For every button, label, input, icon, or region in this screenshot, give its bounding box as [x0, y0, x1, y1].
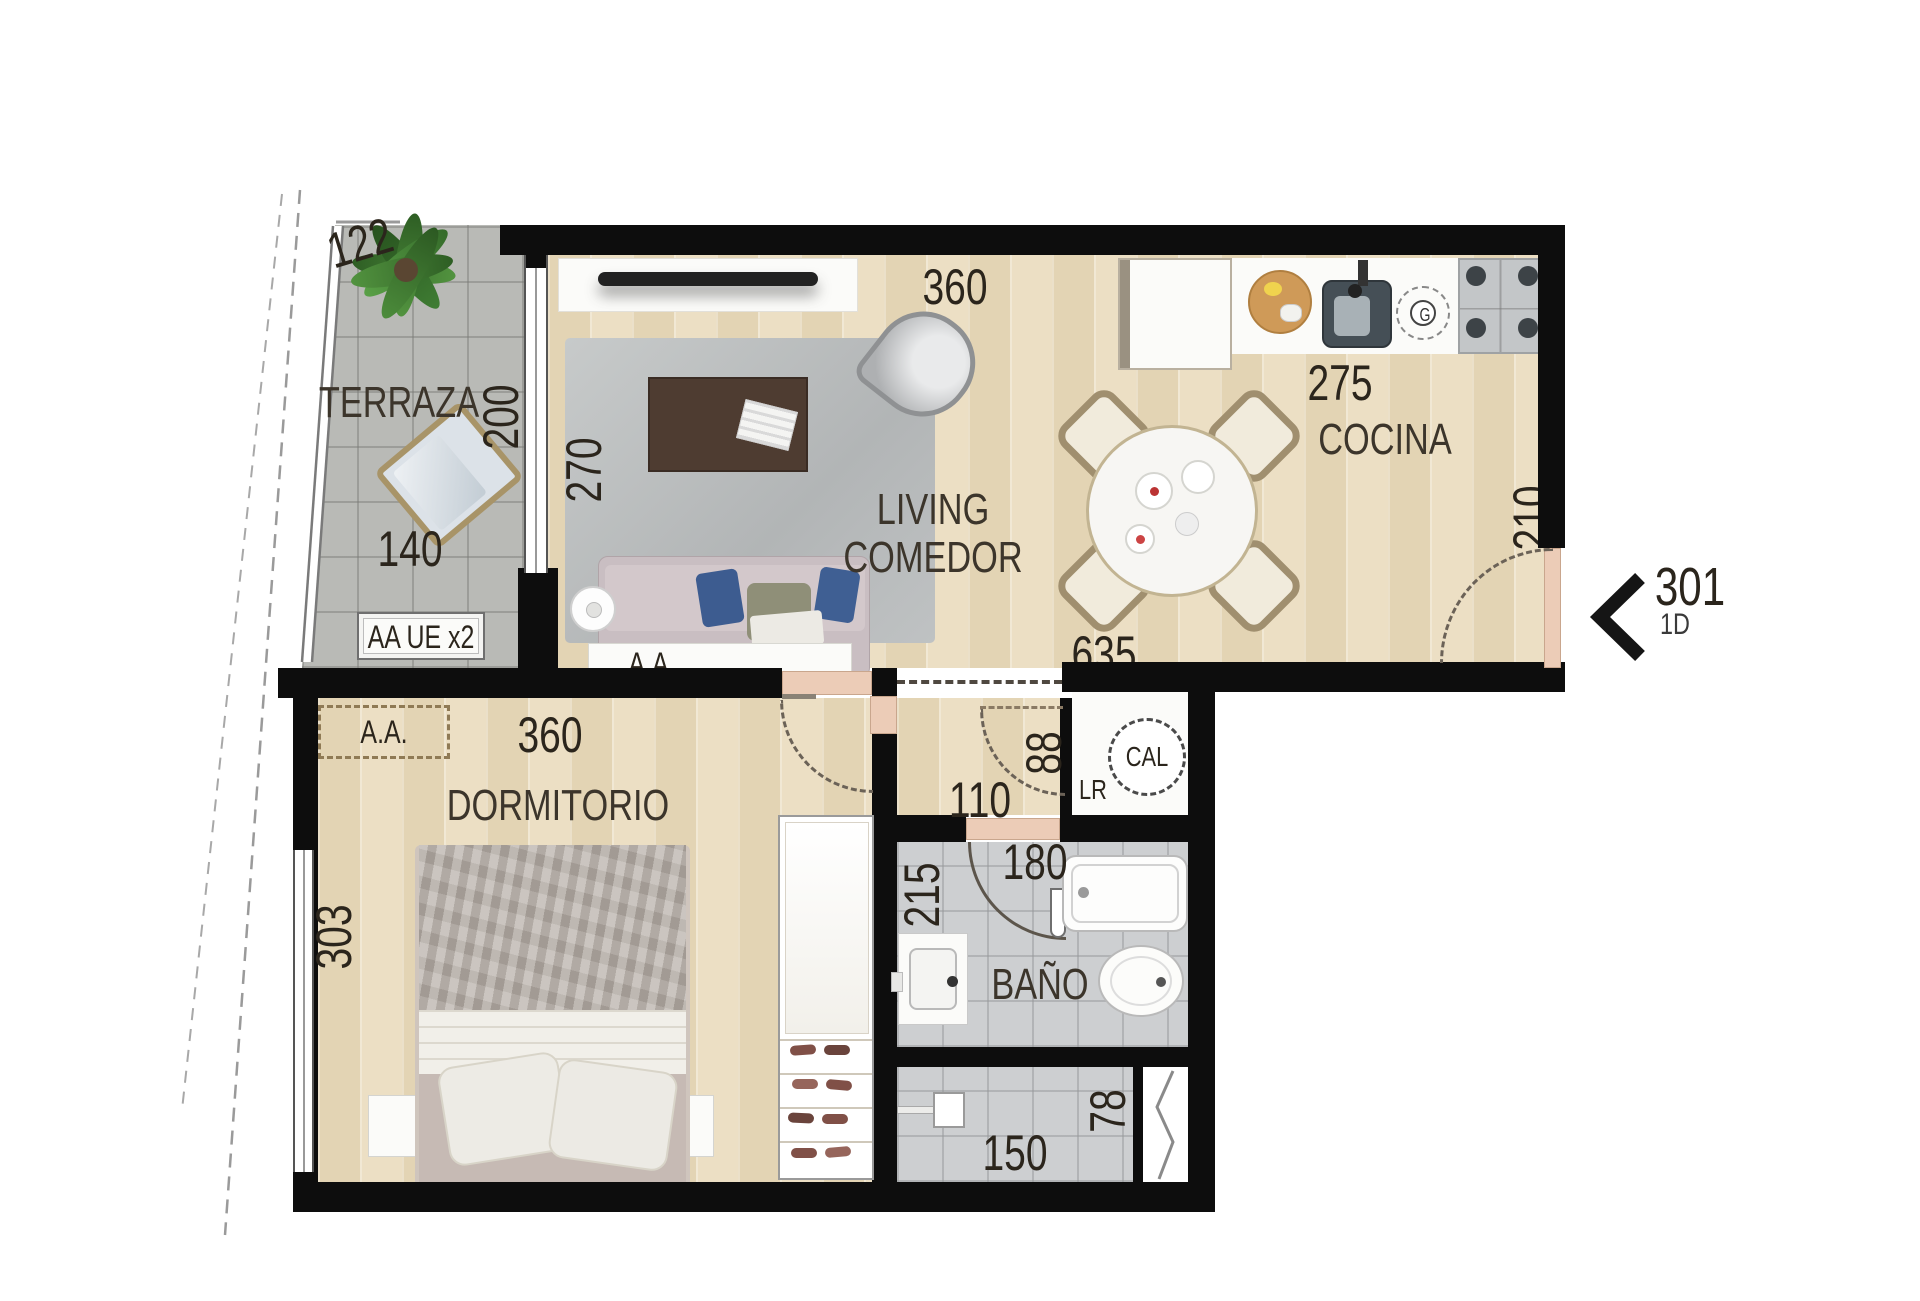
unit-type: 1D — [1660, 610, 1690, 640]
bedroom-ac-label: A.A. — [360, 716, 407, 748]
room-label-terraza: TERRAZA — [319, 381, 479, 425]
dim-bedroom-width: 360 — [517, 710, 582, 760]
terrace-equipment-label: AA UE x2 — [368, 621, 475, 653]
cutting-board-icon — [1248, 270, 1312, 334]
room-label-living-line2: COMEDOR — [843, 536, 1022, 580]
vent-shaft — [1143, 1067, 1188, 1182]
wall-window-end-block — [518, 568, 558, 674]
wall-right-lower — [1188, 662, 1215, 1212]
living-window — [524, 255, 548, 573]
dim-bedroom-depth: 303 — [309, 904, 359, 969]
bathtub-icon — [1062, 855, 1188, 932]
dim-bath-width: 180 — [1002, 837, 1067, 887]
dim-shower-width: 150 — [982, 1128, 1047, 1178]
bedroom-door-frame — [782, 694, 816, 699]
dim-shower-depth: 78 — [1083, 1089, 1133, 1132]
floor-lamp-icon — [570, 586, 616, 632]
bed-blanket — [419, 845, 686, 1010]
wall-bottom — [293, 1182, 1215, 1212]
room-label-bano: BAÑO — [991, 963, 1088, 1007]
tv-icon — [598, 272, 818, 286]
shower-head-icon — [933, 1092, 965, 1128]
wall-bath-top-right — [1060, 815, 1188, 842]
dim-bath-depth: 215 — [897, 862, 947, 927]
nightstand-left — [368, 1095, 420, 1157]
wall-kitchen-bottom — [1062, 662, 1565, 692]
wall-bath-shower — [897, 1047, 1188, 1067]
unit-number: 301 — [1655, 560, 1725, 614]
room-label-dormitorio: DORMITORIO — [447, 784, 669, 828]
room-label-cocina: COCINA — [1318, 418, 1451, 462]
dim-kitchen-width: 275 — [1307, 358, 1372, 408]
bed-pillow — [547, 1057, 680, 1173]
entry-chevron-icon — [1588, 572, 1650, 662]
wall-top — [500, 225, 1565, 255]
dining-table-icon — [1086, 425, 1258, 597]
living-hall-open-boundary — [897, 680, 1062, 684]
cal-closet-label: LR — [1079, 776, 1107, 804]
sofa-pillow-blue-left — [695, 568, 745, 628]
wall-right-upper — [1538, 225, 1565, 548]
bedroom-door-jamb — [870, 696, 897, 734]
dim-living-depth: 270 — [559, 437, 609, 502]
kitchen-sink-icon — [1322, 280, 1392, 348]
closet-icon — [778, 815, 874, 1180]
vent-shaft-zigzag — [1143, 1067, 1188, 1182]
bedroom-doorway — [782, 671, 872, 695]
water-heater-label: CAL — [1126, 743, 1168, 771]
room-label-living-line1: LIVING — [877, 488, 990, 532]
dim-terrace-side: 200 — [476, 384, 526, 449]
bedroom-window — [293, 850, 314, 1172]
vanity-sink-icon — [898, 933, 968, 1025]
dim-hall-depth: 88 — [1019, 731, 1069, 774]
gas-connection-icon: G — [1396, 286, 1450, 340]
toilet-icon — [1098, 945, 1184, 1017]
stove-icon — [1458, 258, 1548, 354]
dim-terrace-width: 140 — [377, 524, 442, 574]
dim-living-width: 360 — [922, 262, 987, 312]
shower-arm — [897, 1106, 937, 1114]
floor-plan: AA UE x2 122 TERRAZA 200 140 A.A. 270 36… — [0, 0, 1920, 1301]
fridge-icon — [1118, 258, 1232, 370]
dim-hall-width: 110 — [949, 775, 1011, 825]
bed-icon — [415, 845, 690, 1182]
gas-mark: G — [1420, 306, 1431, 324]
